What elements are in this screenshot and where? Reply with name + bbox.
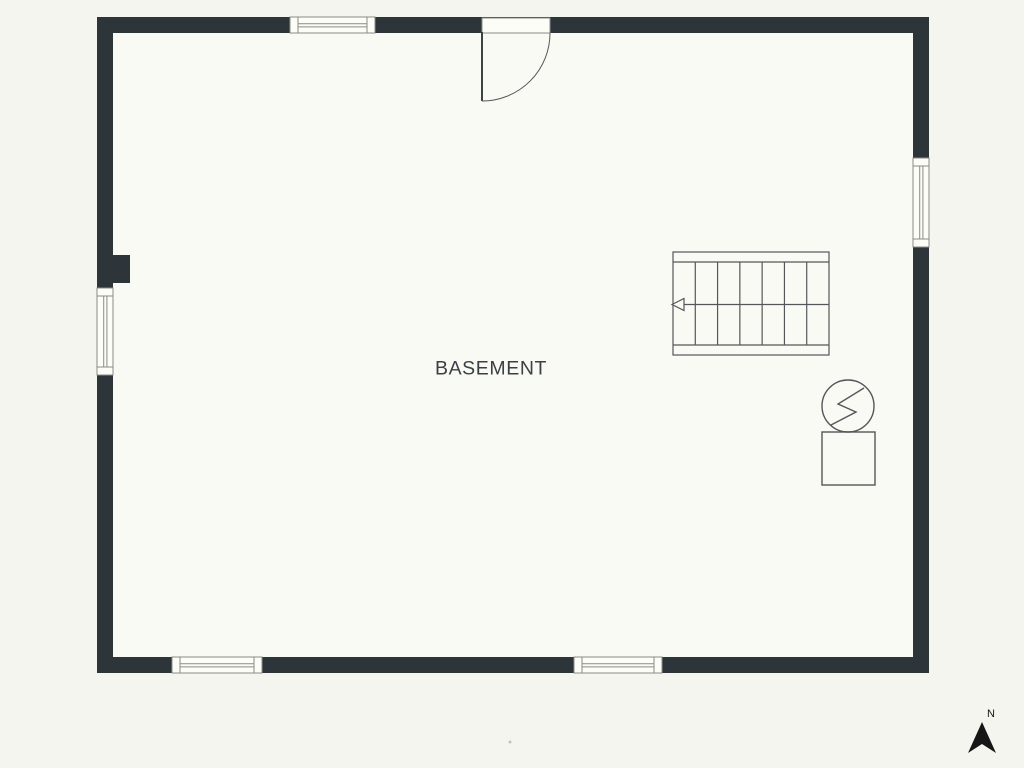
compass-north-label: N [987, 708, 995, 720]
window-frame [172, 657, 262, 673]
window-top [290, 17, 375, 33]
window-frame [97, 288, 113, 375]
window-right [913, 158, 929, 247]
room-label: BASEMENT [435, 358, 547, 381]
window-frame [574, 657, 662, 673]
window-frame [913, 158, 929, 247]
wall-pilaster [97, 255, 130, 283]
door-opening [482, 18, 550, 33]
window-bottom-center [574, 657, 662, 673]
watermark-dot [509, 741, 512, 744]
window-bottom-left [172, 657, 262, 673]
north-arrow-icon [968, 722, 996, 753]
floorplan-page: { "plan": { "room_label": "BASEMENT", "c… [0, 0, 1024, 768]
floorplan-drawing [0, 0, 1024, 768]
window-frame [290, 17, 375, 33]
window-left [97, 288, 113, 375]
